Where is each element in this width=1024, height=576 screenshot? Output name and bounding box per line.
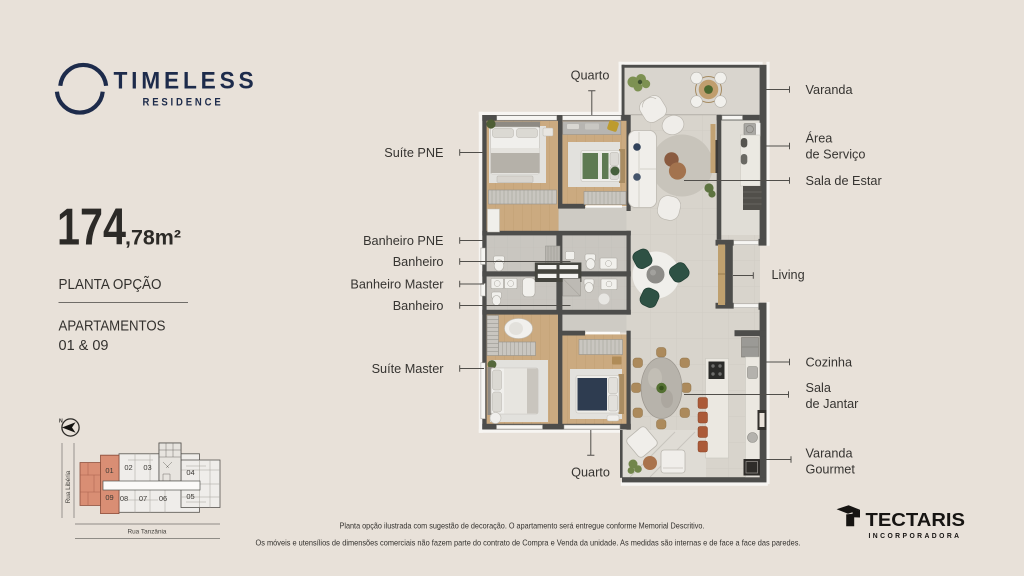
svg-text:N: N [59,419,63,425]
svg-text:PLANTA OPÇÃO: PLANTA OPÇÃO [59,276,162,293]
svg-text:04: 04 [186,468,194,477]
svg-text:Banheiro: Banheiro [393,255,444,269]
svg-text:de Jantar: de Jantar [806,397,860,411]
svg-text:Banheiro: Banheiro [393,299,444,313]
svg-text:01: 01 [105,466,113,475]
svg-text:Quarto: Quarto [571,466,610,480]
svg-text:02: 02 [124,463,132,472]
svg-text:Rua Tanzânia: Rua Tanzânia [128,529,167,536]
svg-text:APARTAMENTOS: APARTAMENTOS [59,319,166,335]
svg-text:03: 03 [143,463,151,472]
svg-text:INCORPORADORA: INCORPORADORA [869,533,962,540]
svg-text:Varanda: Varanda [806,447,854,461]
svg-text:Varanda: Varanda [806,83,854,97]
svg-text:Banheiro PNE: Banheiro PNE [363,234,443,248]
svg-text:06: 06 [159,494,167,503]
svg-text:Planta opção ilustrada com sug: Planta opção ilustrada com sugestão de d… [340,520,705,530]
svg-text:05: 05 [186,492,194,501]
svg-text:Living: Living [772,268,805,282]
svg-text:Os móveis e utensílios de dime: Os móveis e utensílios de dimensões come… [256,537,801,547]
svg-text:Banheiro Master: Banheiro Master [350,278,444,292]
svg-text:TIMELESS: TIMELESS [114,68,258,95]
svg-text:Gourmet: Gourmet [806,463,856,477]
svg-text:Suíte Master: Suíte Master [372,362,445,376]
svg-text:Rua Libéria: Rua Libéria [65,470,72,503]
svg-text:174: 174 [57,198,126,256]
svg-text:Quarto: Quarto [571,69,610,83]
svg-text:07: 07 [139,494,147,503]
svg-text:08: 08 [120,494,128,503]
svg-text:de Serviço: de Serviço [806,148,866,162]
svg-text:TECTARIS: TECTARIS [866,509,966,530]
svg-text:Sala: Sala [806,381,832,395]
svg-text:Área: Área [806,131,834,146]
svg-text:09: 09 [105,493,113,502]
svg-text:Cozinha: Cozinha [806,356,853,370]
svg-text:,78m²: ,78m² [125,227,181,250]
svg-text:Suíte PNE: Suíte PNE [384,146,443,160]
svg-text:01 & 09: 01 & 09 [59,338,109,354]
svg-text:RESIDENCE: RESIDENCE [143,97,224,109]
svg-text:Sala de Estar: Sala de Estar [806,174,883,188]
